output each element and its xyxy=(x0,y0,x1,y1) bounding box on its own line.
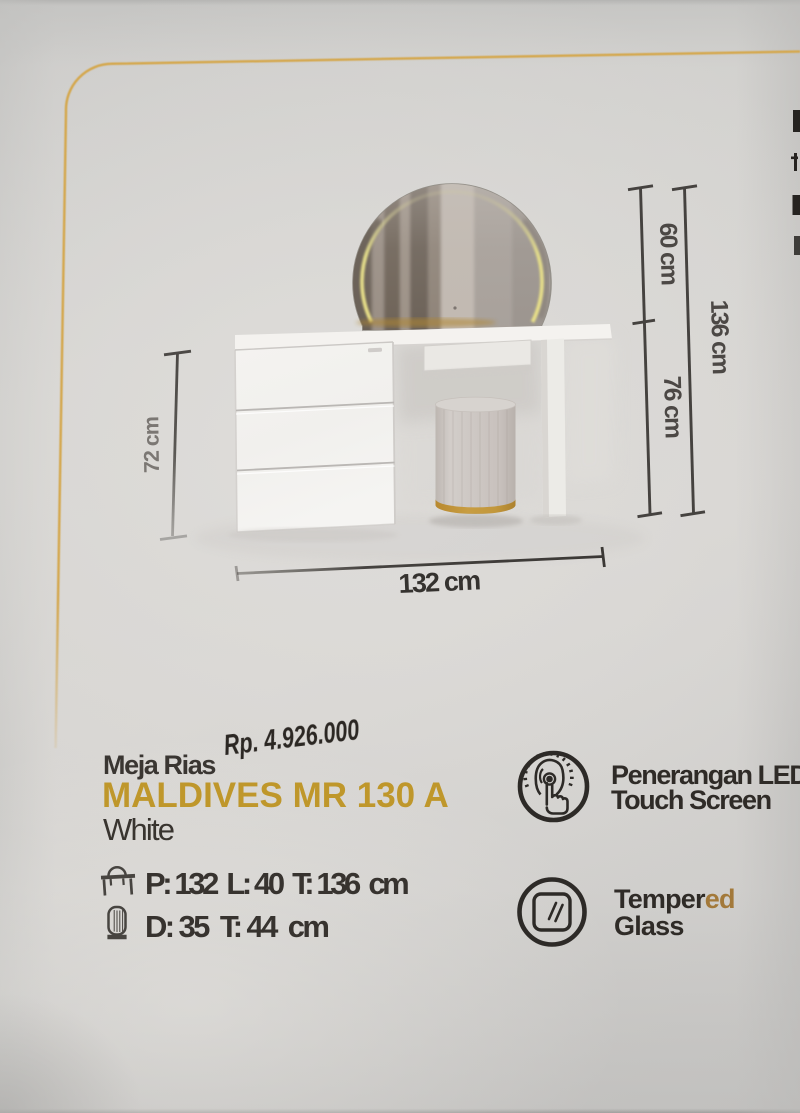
svg-text:60 cm: 60 cm xyxy=(654,222,683,285)
svg-text:72 cm: 72 cm xyxy=(139,417,164,473)
svg-text:76 cm: 76 cm xyxy=(658,375,687,438)
svg-text:132 cm: 132 cm xyxy=(398,565,481,599)
svg-text:136 cm: 136 cm xyxy=(705,299,734,374)
